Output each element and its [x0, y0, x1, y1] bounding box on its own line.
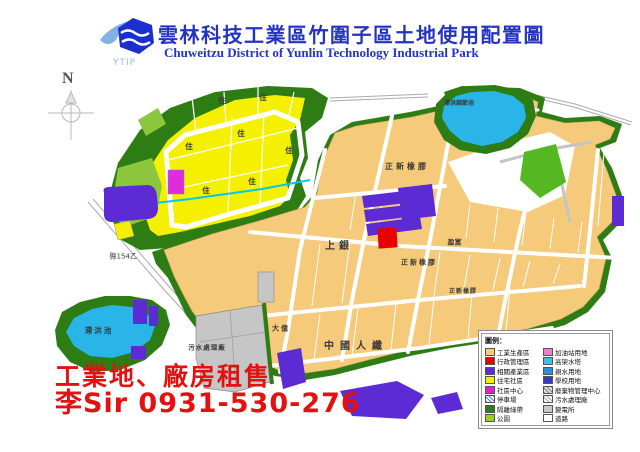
legend-label: 親水用地: [555, 366, 581, 376]
legend-label: 廢棄物管理中心: [555, 385, 601, 395]
legend-label: 高架水塔: [555, 356, 581, 366]
legend-swatch: [485, 405, 495, 413]
parcel-label-hiwin: 上銀: [325, 242, 353, 253]
legend-swatch: [543, 367, 553, 375]
legend-item: 隔離綠帶: [485, 404, 543, 414]
ad-line-2: 李Sir 0931-530-276: [55, 390, 361, 418]
legend-box: 圖例： 工業生產區行政管理區相關產業區住宅社區社區中心停車場隔離綠帶公園 加油站…: [478, 330, 613, 429]
compass-rose: [48, 90, 94, 140]
parcel-label-tayih: 大億: [272, 325, 290, 332]
parcel-label-residential: 住: [259, 94, 267, 102]
legend-column-left: 工業生產區行政管理區相關產業區住宅社區社區中心停車場隔離綠帶公園: [485, 347, 543, 423]
legend-swatch: [543, 395, 553, 403]
legend-column-right: 加油站用地高架水塔親水用地學校用地廢棄物管理中心污水處理廠變電所道路: [543, 347, 606, 423]
label-county-road: 縣154乙: [110, 253, 123, 260]
parcel-label-chengshin-1: 正新橡膠: [385, 163, 429, 171]
legend-label: 行政管理區: [497, 356, 530, 366]
legend-swatch: [543, 348, 553, 356]
legend-item: 污水處理廠: [543, 395, 606, 405]
legend-item: 學校用地: [543, 376, 606, 386]
legend-item: 變電所: [543, 404, 606, 414]
label-pond-ne: 滯洪調節池: [444, 101, 474, 107]
north-label: N: [62, 70, 74, 88]
legend-item: 道路: [543, 414, 606, 424]
legend-label: 污水處理廠: [555, 394, 588, 404]
legend-swatch: [485, 386, 495, 394]
legend-item: 相關產業區: [485, 366, 543, 376]
parcel-label-residential: 住: [237, 130, 245, 138]
legend-swatch: [543, 376, 553, 384]
legend-swatch: [543, 405, 553, 413]
page-title: 雲林科技工業區竹圍子區土地使用配置圖: [158, 19, 545, 48]
gray-small-parcel: [258, 272, 274, 302]
parcel-label-residential: 住: [202, 187, 210, 195]
label-pond-sw: 滯洪池: [85, 327, 114, 335]
legend-swatch: [485, 395, 495, 403]
ad-line-1: 工業地、廠房租售: [55, 364, 361, 390]
legend-item: 停車場: [485, 395, 543, 405]
legend-label: 隔離綠帶: [497, 404, 523, 414]
page: { "header": { "logo_text": "YTIP", "titl…: [0, 0, 640, 452]
legend-swatch: [543, 357, 553, 365]
legend-item: 行政管理區: [485, 357, 543, 367]
legend-label: 相關產業區: [497, 366, 530, 376]
parcel-label-residential: 住: [285, 147, 293, 155]
legend-label: 學校用地: [555, 375, 581, 385]
parcel-label-residential: 住: [218, 97, 226, 105]
related-industry-parcel-nw: [104, 185, 159, 222]
legend-swatch: [543, 386, 553, 394]
legend-label: 加油站用地: [555, 347, 588, 357]
legend-swatch: [485, 414, 495, 422]
legend-label: 停車場: [497, 394, 517, 404]
logo-label: YTIP: [113, 58, 136, 68]
legend-item: 工業生產區: [485, 347, 543, 357]
legend-item: 加油站用地: [543, 347, 606, 357]
parcel-label-residential: 住: [248, 178, 256, 186]
page-subtitle: Chuweitzu District of Yunlin Technology …: [164, 45, 479, 61]
label-sewage-plant: 污水處理廠: [188, 345, 226, 352]
admin-parcel-red: [377, 227, 397, 248]
legend-label: 公園: [497, 413, 510, 423]
parcel-label-residential: 住: [185, 143, 193, 151]
advertisement: 工業地、廠房租售 李Sir 0931-530-276: [55, 364, 361, 417]
legend-label: 住宅社區: [497, 375, 523, 385]
community-center-parcel: [168, 170, 184, 194]
legend-columns: 工業生產區行政管理區相關產業區住宅社區社區中心停車場隔離綠帶公園 加油站用地高架…: [485, 347, 606, 423]
legend-label: 工業生產區: [497, 347, 530, 357]
parcel-label-cmfc: 中國人纖: [324, 342, 388, 353]
legend-swatch: [543, 414, 553, 422]
parcel-label-chengshin-3: 正新橡膠: [449, 289, 477, 295]
legend-item: 廢棄物管理中心: [543, 385, 606, 395]
legend-label: 道路: [555, 413, 568, 423]
legend-swatch: [485, 348, 495, 356]
legend-item: 社區中心: [485, 385, 543, 395]
legend-swatch: [485, 376, 495, 384]
parcel-label-chengshin-2: 正新橡膠: [401, 259, 437, 266]
legend-inner: 圖例： 工業生產區行政管理區相關產業區住宅社區社區中心停車場隔離綠帶公園 加油站…: [481, 333, 610, 426]
legend-title: 圖例：: [485, 336, 606, 346]
legend-label: 變電所: [555, 404, 575, 414]
parcel-label-yingfu: 盈富: [448, 239, 457, 246]
legend-swatch: [485, 357, 495, 365]
legend-swatch: [485, 367, 495, 375]
ytip-logo: [100, 18, 154, 54]
legend-item: 住宅社區: [485, 376, 543, 386]
legend-label: 社區中心: [497, 385, 523, 395]
legend-item: 親水用地: [543, 366, 606, 376]
legend-item: 高架水塔: [543, 357, 606, 367]
legend-item: 公園: [485, 414, 543, 424]
